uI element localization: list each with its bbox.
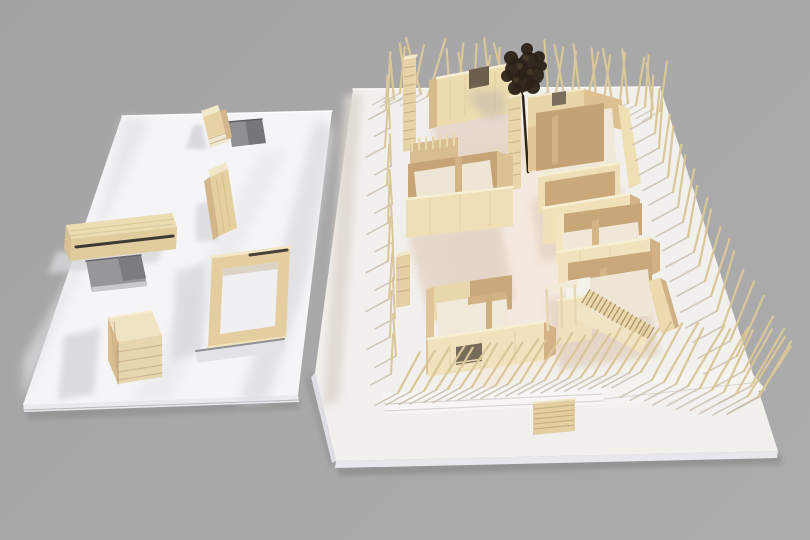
stick-row-left-edge-stick: [393, 242, 394, 280]
stick-row-bottom-right-stick: [748, 337, 785, 396]
building-c-inner-wall: [536, 103, 604, 171]
building-a-left-wall: [429, 78, 437, 129]
connector-posts-stick: [561, 288, 562, 327]
tree-canopy-highlights-blob: [517, 63, 523, 69]
tree-shadow-2: [469, 89, 487, 107]
tree-canopy-highlights-blob: [523, 55, 529, 61]
stick-row-left-edge-stick: [390, 134, 391, 166]
tree-canopy-blob: [504, 51, 518, 65]
frame-building-shadow: [172, 262, 206, 362]
building-c-notch: [552, 91, 566, 106]
tree-canopy-blob: [526, 80, 540, 94]
tree-canopy-blob: [501, 70, 513, 82]
left-post: [396, 254, 410, 308]
tree-canopy-blob: [537, 61, 547, 71]
connector-posts-stick: [547, 290, 548, 330]
stick-row-right-edge-stick: [730, 282, 754, 341]
scene-svg: [0, 0, 810, 540]
tree-canopy-blob: [521, 43, 533, 55]
stick-row-left-edge-stick: [386, 76, 387, 110]
architectural-model-photo: [0, 0, 810, 540]
tree-canopy-blob: [508, 81, 522, 95]
building-a-notch: [469, 66, 489, 89]
left-side-cutout-dark: [118, 255, 146, 281]
tree-canopy-highlights-blob: [527, 69, 533, 75]
cube-shadow: [58, 328, 100, 400]
stick-row-right-edge-stick: [737, 296, 764, 356]
connector-posts-stick: [575, 285, 576, 325]
tree-canopy-highlights-blob: [513, 77, 519, 83]
building-c-partition: [552, 115, 558, 165]
